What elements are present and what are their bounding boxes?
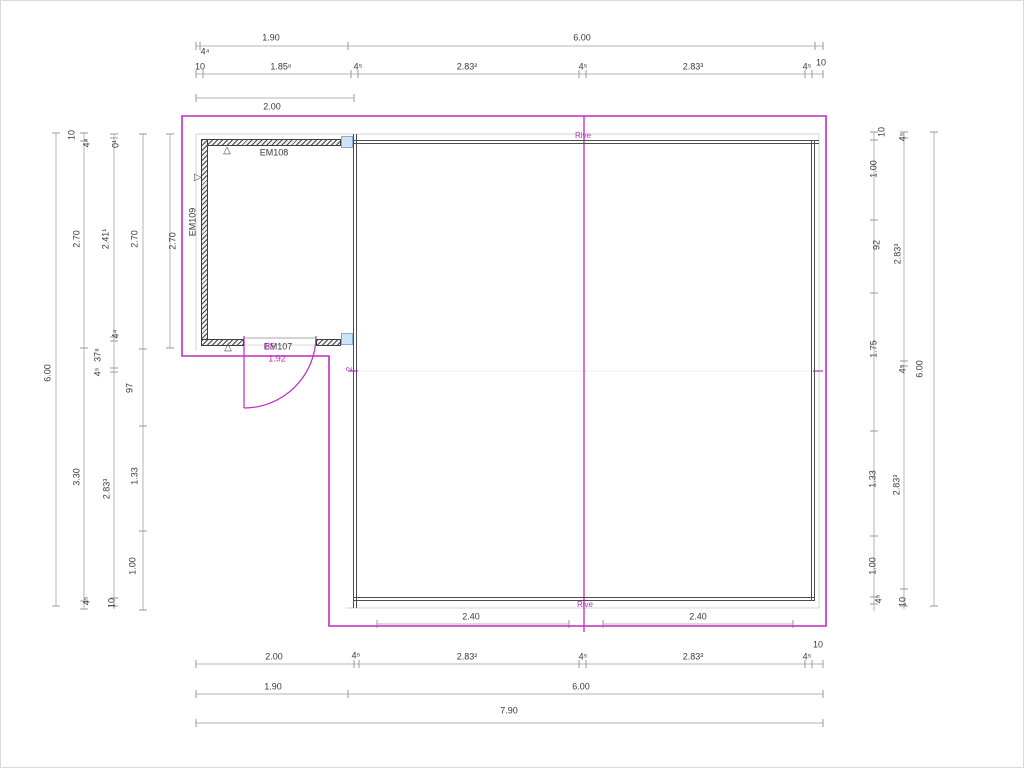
dim-left5-2-70: 2.70 bbox=[169, 232, 178, 250]
dim-bot1-4-5-a: 4⁵ bbox=[352, 652, 361, 661]
dim-right2-4-5-mid: 4⁵ bbox=[899, 365, 908, 374]
wall-em108-hatched bbox=[201, 139, 341, 146]
dim-bot1-2-83-2: 2.83² bbox=[457, 653, 478, 662]
wall-em107-hatched-right bbox=[316, 339, 341, 346]
dim-left3-4-4-top: 4⁴ bbox=[83, 139, 92, 148]
dim-top2-2-83-2: 2.83² bbox=[457, 63, 478, 72]
dim-bot2-1-90: 1.90 bbox=[264, 683, 282, 692]
dim-left3-2-41-1: 2.41¹ bbox=[102, 229, 111, 250]
dim-left3-4-5: 4⁵ bbox=[94, 368, 103, 377]
door-width-label: 85 bbox=[265, 343, 275, 352]
dim-left4-1-00: 1.00 bbox=[129, 557, 138, 575]
dim-right1-92: 92 bbox=[873, 240, 882, 250]
dim-top-1-90: 1.90 bbox=[262, 34, 280, 43]
dim-bot1-2-00: 2.00 bbox=[265, 653, 283, 662]
main-wall-top bbox=[353, 140, 819, 144]
dim-left4-0-1: 0¹ bbox=[112, 140, 121, 148]
main-wall-right bbox=[811, 140, 815, 601]
dim-right1-1-33: 1.33 bbox=[869, 470, 878, 488]
dim-left2-10: 10 bbox=[68, 130, 77, 140]
dim-left4-97: 97 bbox=[126, 383, 135, 393]
dim-top-10-right: 10 bbox=[816, 59, 826, 68]
dim-right2-4-5-top: 4⁵ bbox=[899, 133, 908, 142]
dim-left4-2-70: 2.70 bbox=[131, 230, 140, 248]
dim-right3-6-00: 6.00 bbox=[916, 360, 925, 378]
dim-right1-1-00-bot: 1.00 bbox=[869, 557, 878, 575]
floor-plan-drawing: 1.906.004⁴10101.85⁶4⁵2.83²4⁵2.83³4⁵2.002… bbox=[0, 0, 1024, 768]
dim-bot1-2-83-3: 2.83³ bbox=[683, 653, 704, 662]
dim-left2-4-5: 4⁵ bbox=[83, 597, 92, 606]
dim-bot1-4-5-c: 4⁵ bbox=[803, 653, 812, 662]
wall-em107-hatched-left bbox=[201, 339, 244, 346]
dim-right1-1-00-top: 1.00 bbox=[870, 160, 879, 178]
dim-left2-3-30: 3.30 bbox=[73, 468, 82, 486]
connector-square-top bbox=[341, 136, 353, 148]
dim-top2-4-5-a: 4⁵ bbox=[354, 63, 363, 72]
dim-inner-2-40-left: 2.40 bbox=[462, 613, 480, 622]
connector-square-bottom bbox=[341, 333, 353, 345]
dim-bot2-6-00: 6.00 bbox=[572, 683, 590, 692]
dim-left3-4-4-mid: 4⁴ bbox=[112, 330, 121, 339]
dim-bot1-4-5-b: 4⁵ bbox=[579, 653, 588, 662]
marker-triangle-left: ▷ bbox=[194, 173, 202, 183]
dim-left3-37-8: 37⁸ bbox=[94, 348, 103, 362]
dim-left3-10: 10 bbox=[108, 598, 117, 608]
dim-left3-2-83-3: 2.83³ bbox=[103, 479, 112, 500]
dim-right1-1-75: 1.75 bbox=[870, 340, 879, 358]
dim-left-6-00: 6.00 bbox=[44, 364, 53, 382]
rive-label-top: Rive bbox=[575, 132, 591, 140]
dim-right2-2-83-3-bot: 2.83³ bbox=[893, 475, 902, 496]
roof-mid-label-2: 2 bbox=[346, 367, 354, 371]
dim-bot-10: 10 bbox=[813, 641, 823, 650]
dim-top-6-00: 6.00 bbox=[573, 34, 591, 43]
wall-label-em108: EM108 bbox=[260, 149, 289, 158]
dim-left4-1-33: 1.33 bbox=[131, 467, 140, 485]
dim-right1-10: 10 bbox=[878, 127, 887, 137]
dim-top2-10: 10 bbox=[195, 63, 205, 72]
marker-triangle-bottom: △ bbox=[224, 343, 232, 353]
marker-triangle-top: △ bbox=[223, 146, 231, 156]
dim-bot3-7-90: 7.90 bbox=[500, 707, 518, 716]
dim-top-2-00: 2.00 bbox=[263, 103, 281, 112]
dim-left2-2-70: 2.70 bbox=[73, 230, 82, 248]
plan-linework bbox=[1, 1, 1024, 768]
dim-right1-4-5: 4⁵ bbox=[875, 595, 884, 604]
dim-top2-2-83-3: 2.83³ bbox=[683, 63, 704, 72]
dim-top2-4-5-c: 4⁵ bbox=[803, 63, 812, 72]
wall-em109-hatched bbox=[201, 139, 208, 346]
dim-top2-4-5-b: 4⁵ bbox=[579, 63, 588, 72]
rive-label-bottom: Rive bbox=[577, 601, 593, 609]
dim-right2-10: 10 bbox=[899, 597, 908, 607]
dim-inner-2-40-right: 2.40 bbox=[689, 613, 707, 622]
dim-top2-1-85-6: 1.85⁶ bbox=[270, 63, 291, 72]
door-dim-1-92: 1.92 bbox=[268, 355, 286, 364]
dim-right2-2-83-3-top: 2.83³ bbox=[894, 244, 903, 265]
dim-top-4-4: 4⁴ bbox=[201, 48, 210, 57]
wall-label-em109: EM109 bbox=[189, 208, 198, 237]
